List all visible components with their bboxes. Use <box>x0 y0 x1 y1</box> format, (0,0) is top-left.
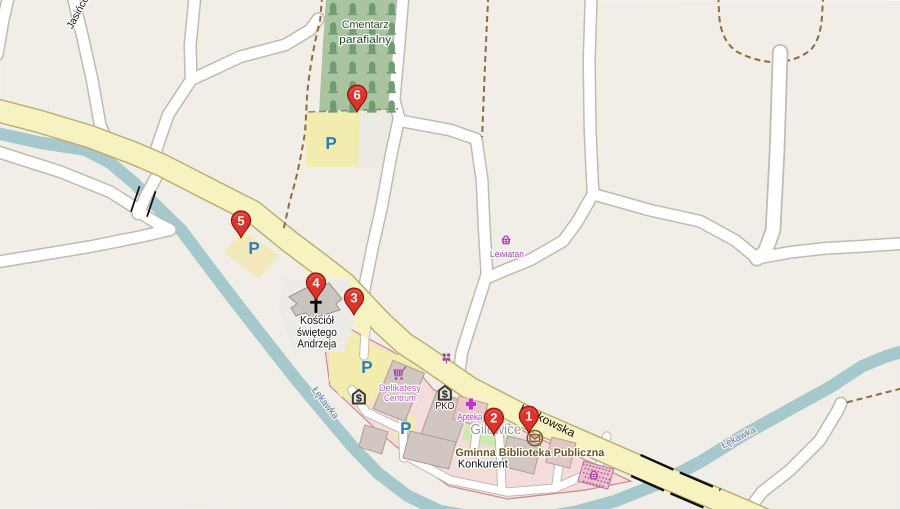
svg-text:3: 3 <box>350 290 357 305</box>
svg-text:5: 5 <box>237 213 244 228</box>
svg-text:4: 4 <box>312 275 320 290</box>
svg-text:P: P <box>361 358 372 377</box>
svg-text:PKO: PKO <box>435 401 454 412</box>
svg-text:Centrum: Centrum <box>384 393 416 404</box>
svg-text:Konkurent: Konkurent <box>458 459 509 471</box>
svg-text:P: P <box>325 134 336 153</box>
svg-text:6: 6 <box>354 87 361 102</box>
svg-text:świętego: świętego <box>297 327 337 339</box>
svg-text:Cmentarz: Cmentarz <box>342 19 389 31</box>
svg-text:Lewiatan: Lewiatan <box>490 249 524 259</box>
svg-text:parafialny: parafialny <box>339 34 392 46</box>
svg-text:P: P <box>400 419 411 438</box>
svg-text:Gminna Biblioteka Publiczna: Gminna Biblioteka Publiczna <box>455 447 605 459</box>
svg-text:2: 2 <box>490 410 497 425</box>
svg-text:P: P <box>248 239 259 258</box>
svg-text:1: 1 <box>525 408 532 423</box>
svg-text:Andrzeja: Andrzeja <box>297 338 337 350</box>
svg-text:Kościół: Kościół <box>300 315 334 327</box>
